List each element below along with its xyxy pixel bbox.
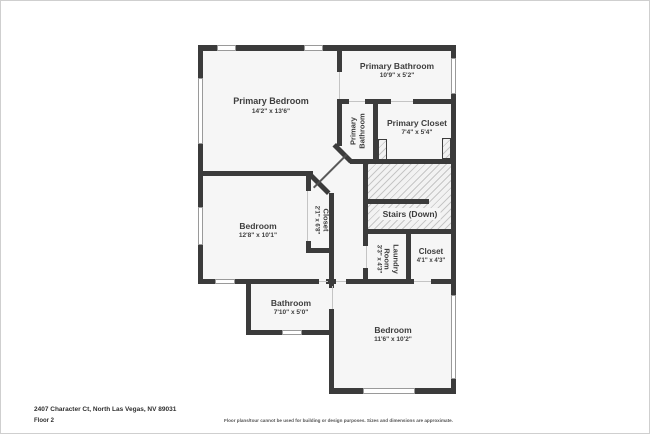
hatch-post-right [442,138,451,159]
room-dims: 11'6" x 10'2" [333,336,453,344]
window [304,45,323,51]
footer-address: 2407 Character Ct, North Las Vegas, NV 8… [34,406,176,413]
room-name: Primary Closet [356,118,478,128]
room-label-bedroom-bottom: Bedroom 11'6" x 10'2" [333,325,453,344]
room-label-closet: Closet 4'1" x 4'3" [409,247,453,265]
window [363,388,415,394]
wall [365,99,391,104]
wall [198,171,313,176]
room-name: Bedroom [198,221,318,231]
wall [306,241,311,248]
room-dims: 7'10" x 5'0" [251,309,331,317]
wall [363,199,429,204]
door-opening [332,286,333,309]
footer-disclaimer: Floor plans/tour cannot be used for buil… [224,418,453,423]
door-opening [319,281,328,282]
window [217,45,236,51]
wall [306,248,332,253]
window [282,330,302,335]
room-dims: 4'1" x 4'3" [409,258,453,265]
room-label-laundry: Laundry Room 3'3" x 4'3" [374,239,399,279]
room-name: Bedroom [333,325,453,335]
door-opening [414,281,431,282]
wall [329,309,334,393]
room-label-stairs: Stairs (Down) [380,208,441,220]
room-name: Bathroom [251,298,331,308]
wall [413,99,456,104]
room-name: Closet [409,247,453,257]
window [215,279,235,284]
floor-plan-page: Primary Bedroom 14'2" x 13'6" Primary Ba… [0,0,650,434]
room-name: Primary Bedroom [201,96,341,107]
room-label-bathroom: Bathroom 7'10" x 5'0" [251,298,331,317]
room-dims: 2'1" x 6'8" [313,192,320,248]
room-dims: 3'3" x 4'3" [374,239,381,279]
room-name: Laundry Room [382,239,399,279]
wall [373,159,456,164]
room-label-bedroom-closet: Closet 2'1" x 6'8" [313,192,330,248]
wall [306,171,311,191]
room-dims: 10'9" x 5'2" [327,72,467,80]
room-label-bedroom-left: Bedroom 12'8" x 10'1" [198,221,318,240]
wall [198,45,456,51]
wall [363,161,368,234]
door-opening [391,101,413,102]
room-name: Primary Bathroom [327,61,467,71]
wall [363,268,368,284]
room-label-primary-closet: Primary Closet 7'4" x 5'4" [356,118,478,137]
room-label-primary-bedroom: Primary Bedroom 14'2" x 13'6" [201,96,341,116]
door-opening [349,101,365,102]
footer-floor-label: Floor 2 [34,418,54,424]
wall [363,234,368,246]
wall [431,279,456,284]
room-label-primary-bathroom: Primary Bathroom 10'9" x 5'2" [327,61,467,80]
room-dims: 12'8" x 10'1" [198,232,318,240]
wall [346,279,414,284]
wall [329,193,334,279]
door-opening [336,281,346,282]
room-dims: 7'4" x 5'4" [356,129,478,137]
hatch-post-left [378,139,387,161]
room-dims: 14'2" x 13'6" [201,108,341,116]
door-opening [366,246,367,268]
room-name: Closet [321,192,330,248]
